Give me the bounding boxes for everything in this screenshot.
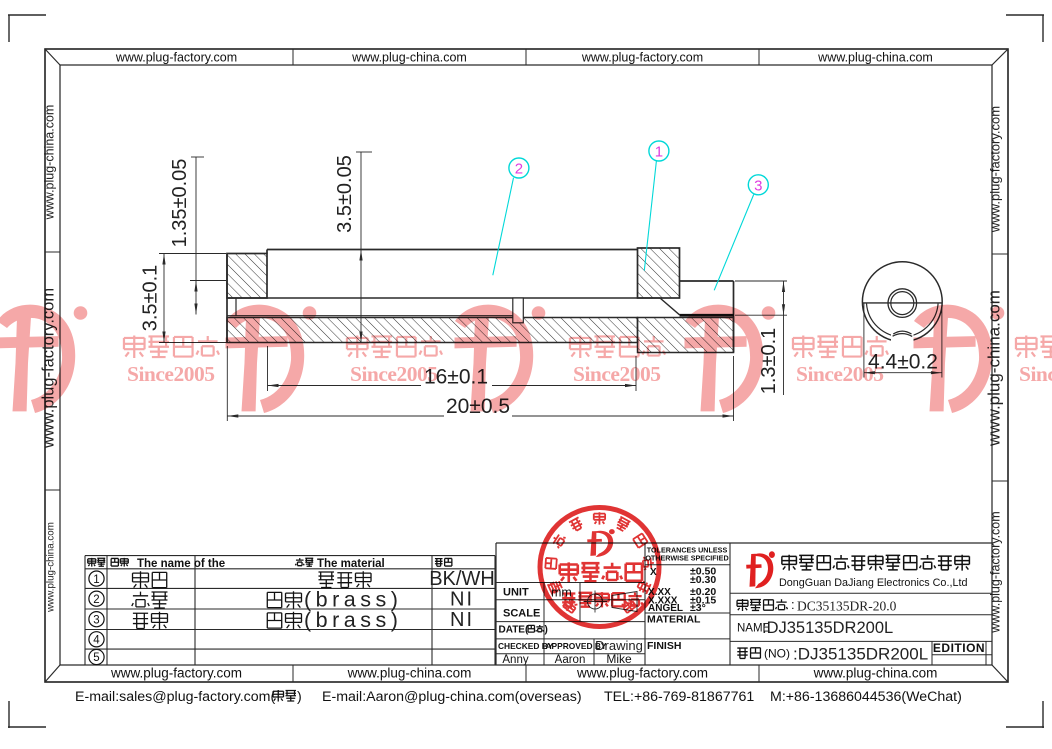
svg-text:Since2005: Since2005: [573, 362, 660, 386]
svg-text:Aaron: Aaron: [555, 654, 586, 666]
svg-text:Anny: Anny: [502, 654, 528, 666]
svg-text:BK/WH: BK/WH: [429, 568, 495, 590]
svg-text:4: 4: [93, 635, 100, 647]
svg-text:): ): [297, 689, 302, 705]
svg-text:Since2005: Since2005: [350, 362, 437, 386]
svg-text:EDITION: EDITION: [933, 641, 985, 655]
svg-text:www.plug-china.com: www.plug-china.com: [817, 51, 933, 65]
svg-text:TEL:+86-769-81867761: TEL:+86-769-81867761: [604, 689, 754, 705]
svg-text:1: 1: [93, 574, 99, 586]
svg-text:NI: NI: [450, 609, 474, 631]
svg-text:Since2005: Since2005: [796, 362, 883, 386]
svg-text:www.plug-china.com: www.plug-china.com: [351, 51, 467, 65]
svg-text:www.plug-factory.com: www.plug-factory.com: [988, 106, 1003, 233]
svg-text:(NO): (NO): [764, 647, 790, 661]
svg-text:DATE(: DATE(: [499, 624, 529, 635]
svg-text:UNIT: UNIT: [503, 587, 529, 599]
svg-text:Since2005: Since2005: [1019, 362, 1052, 386]
svg-text:3: 3: [93, 614, 99, 626]
svg-text:): ): [545, 624, 548, 635]
svg-text:5: 5: [93, 652, 99, 664]
svg-text:3.5±0.05: 3.5±0.05: [334, 155, 356, 233]
svg-text:Mike: Mike: [606, 652, 632, 666]
svg-text:FINISH: FINISH: [647, 640, 681, 652]
svg-text:±0.30: ±0.30: [690, 574, 716, 586]
svg-text:The material: The material: [317, 558, 385, 570]
svg-text:www.plug-china.com: www.plug-china.com: [813, 666, 938, 681]
svg-text:2: 2: [515, 161, 523, 178]
svg-text:The name of the: The name of the: [137, 558, 225, 570]
svg-text:M:+86-13686044536(WeChat): M:+86-13686044536(WeChat): [770, 689, 962, 705]
svg-text:(brass): (brass): [304, 608, 402, 632]
svg-text:www.plug-factory.com: www.plug-factory.com: [581, 51, 703, 65]
svg-text:DC35135DR-20.0: DC35135DR-20.0: [797, 599, 897, 614]
svg-text:3: 3: [754, 177, 762, 194]
svg-text::DJ35135DR200L: :DJ35135DR200L: [793, 645, 928, 664]
svg-text:E-mail:Aaron@plug-china.com(ov: E-mail:Aaron@plug-china.com(overseas): [322, 689, 582, 705]
svg-text:±3°: ±3°: [690, 602, 706, 614]
svg-text:3.5±0.1: 3.5±0.1: [140, 265, 162, 332]
svg-text:www.plug-china.com: www.plug-china.com: [46, 522, 57, 613]
svg-text::: :: [791, 597, 795, 612]
svg-text:E-mail:sales@plug-factory.com(: E-mail:sales@plug-factory.com(: [75, 689, 275, 705]
svg-text:1: 1: [655, 144, 663, 161]
svg-text:MATERIAL: MATERIAL: [647, 614, 701, 626]
svg-text:www.plug-factory.com: www.plug-factory.com: [115, 51, 237, 65]
svg-text::DJ35135DR200L: :DJ35135DR200L: [762, 619, 893, 637]
svg-text:www.plug-china.com: www.plug-china.com: [347, 666, 472, 681]
svg-text:www.plug-factory.com: www.plug-factory.com: [110, 666, 242, 681]
svg-text:1.35±0.05: 1.35±0.05: [169, 159, 191, 248]
svg-text:SCALE: SCALE: [503, 608, 540, 620]
svg-text:www.plug-china.com: www.plug-china.com: [43, 105, 57, 221]
svg-text:NI: NI: [450, 589, 474, 611]
svg-text:2: 2: [93, 594, 99, 606]
svg-text:Drawing: Drawing: [595, 638, 643, 653]
svg-text:DongGuan DaJiang Electronics C: DongGuan DaJiang Electronics Co.,Ltd: [779, 577, 967, 589]
svg-text:Since2005: Since2005: [127, 362, 214, 386]
svg-text:ANGEL: ANGEL: [648, 603, 683, 614]
svg-text:www.plug-factory.com: www.plug-factory.com: [989, 511, 1003, 633]
svg-text:www.plug-factory.com: www.plug-factory.com: [576, 666, 708, 681]
